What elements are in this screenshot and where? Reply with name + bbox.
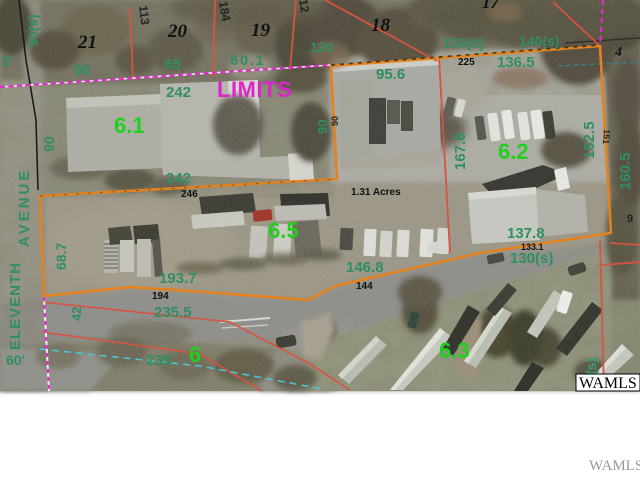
svg-text:120: 120: [310, 39, 334, 55]
svg-text:65: 65: [164, 56, 181, 73]
svg-text:60.1: 60.1: [230, 52, 265, 69]
svg-text:5': 5': [2, 53, 13, 69]
svg-text:68.7: 68.7: [53, 243, 69, 270]
svg-text:136.5: 136.5: [497, 54, 535, 71]
svg-text:225: 225: [458, 57, 475, 68]
svg-text:90: 90: [315, 120, 330, 134]
svg-text:(s): (s): [583, 358, 599, 375]
svg-text:WAMLS: WAMLS: [579, 375, 637, 392]
svg-text:6.1: 6.1: [114, 113, 145, 138]
svg-text:113: 113: [136, 5, 152, 26]
svg-text:167.6: 167.6: [452, 132, 469, 170]
svg-text:6.2: 6.2: [498, 139, 529, 164]
svg-text:18: 18: [371, 15, 391, 36]
svg-text:235: 235: [146, 352, 171, 369]
svg-text:130(s): 130(s): [510, 250, 553, 267]
svg-text:193.7: 193.7: [159, 270, 197, 287]
svg-text:6.5: 6.5: [268, 218, 299, 243]
svg-text:WAMLS: WAMLS: [589, 458, 640, 474]
svg-text:AVENUE: AVENUE: [16, 168, 33, 247]
svg-text:160.5: 160.5: [617, 152, 634, 190]
svg-text:9: 9: [627, 213, 633, 225]
svg-text:60': 60': [6, 352, 25, 368]
svg-text:242: 242: [166, 84, 191, 101]
svg-text:144: 144: [356, 281, 373, 292]
svg-text:19: 19: [251, 20, 271, 41]
svg-text:152.5: 152.5: [581, 121, 598, 159]
svg-text:95.6: 95.6: [376, 66, 405, 83]
svg-text:1.31 Acres: 1.31 Acres: [351, 187, 401, 198]
svg-text:90(s): 90(s): [25, 14, 41, 47]
svg-text:90: 90: [41, 136, 57, 152]
svg-text:246: 246: [181, 189, 198, 200]
svg-text:LIMITS: LIMITS: [217, 77, 292, 102]
svg-text:146.8: 146.8: [346, 259, 384, 276]
svg-text:150(d): 150(d): [443, 35, 484, 51]
svg-text:17: 17: [482, 0, 501, 12]
svg-text:6.3: 6.3: [439, 338, 470, 363]
svg-text:140(s): 140(s): [519, 33, 559, 49]
svg-text:242: 242: [166, 170, 191, 187]
svg-text:4: 4: [614, 45, 622, 60]
svg-text:42: 42: [69, 307, 84, 321]
svg-text:235.5: 235.5: [154, 304, 192, 321]
svg-text:194: 194: [152, 291, 169, 302]
svg-text:90: 90: [330, 116, 340, 126]
svg-text:137.8: 137.8: [507, 225, 545, 242]
svg-text:151: 151: [601, 129, 612, 145]
svg-text:ELEVENTH: ELEVENTH: [7, 262, 24, 350]
svg-text:90: 90: [74, 62, 91, 79]
svg-text:20: 20: [167, 21, 188, 42]
svg-text:21: 21: [77, 32, 97, 53]
svg-text:6: 6: [189, 342, 201, 367]
